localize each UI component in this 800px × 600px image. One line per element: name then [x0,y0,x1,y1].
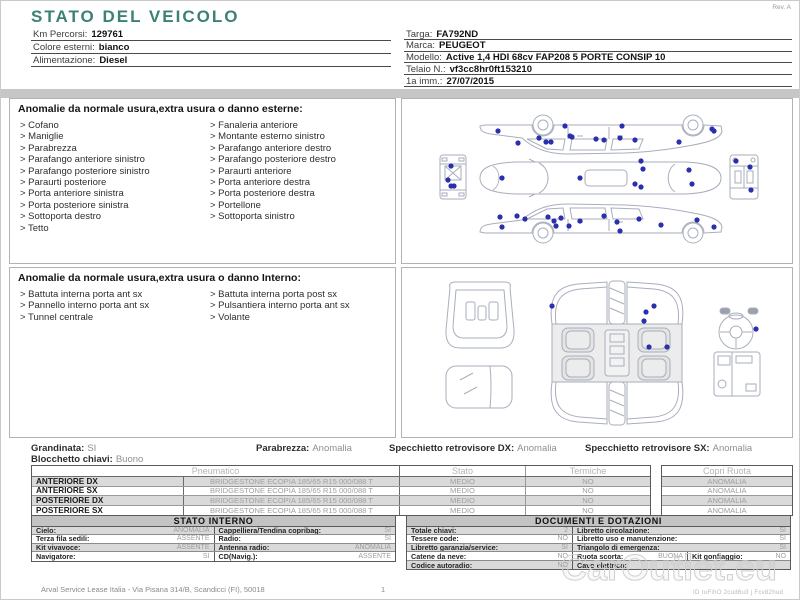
kv-cell: Libretto uso e manutenzione:SI [572,535,790,543]
damage-dot [711,224,716,229]
damage-dot [558,215,563,220]
kv-cell: Libretto circolazione:SI [572,527,790,535]
damage-dot [448,163,453,168]
anomaly-item: > Portellone [210,200,336,211]
tire-table: Pneumatico Stato Termiche ANTERIORE DXBR… [31,465,651,516]
kv-row: Kit vivavoce:ASSENTEAntenna radio:ANOMAL… [32,544,395,553]
damage-dot [577,175,582,180]
header-field-value: PEUGEOT [439,40,485,51]
interior-floorplan [551,281,683,425]
damage-dot [614,219,619,224]
header-field-label: Marca: [406,40,435,51]
kv-value: NO [558,535,569,542]
copri-ruota-row: ANOMALIA [662,487,792,497]
tire-termiche: NO [526,487,650,496]
damage-dot [636,216,641,221]
damage-dot [495,128,500,133]
kv-cell: CD(Navig.):ASSENTE [214,552,396,561]
anomaly-item: > Fanaleria anteriore [210,120,336,131]
damage-dot [651,303,656,308]
kv-value: SI [384,527,391,534]
anomaly-item: > Tetto [20,223,150,234]
page-title: STATO DEL VEICOLO [31,7,239,27]
interior-anomalies-col1: > Battuta interna porta ant sx> Pannello… [20,289,149,323]
kv-label: Libretto uso e manutenzione: [577,535,677,543]
header-field-label: Km Percorsi: [33,29,87,40]
status-line: Grandinata:SI Parabrezza:Anomalia Specch… [1,443,800,464]
damage-dot [617,228,622,233]
status-parabrezza: Parabrezza:Anomalia [256,443,352,454]
exterior-damage-diagram [401,98,793,264]
kv-value: 2 [564,527,568,534]
header-field-label: Alimentazione: [33,55,95,66]
interior-anomalies-section: Anomalie da normale usura,extra usura o … [9,267,396,438]
damage-dot [748,187,753,192]
damage-dot [522,216,527,221]
watermark-id-line: ID ruFihO 2cud6u3 j Fcv82hud [693,590,783,596]
tire-termiche: NO [526,506,650,516]
anomaly-item: > Pulsantiera interno porta ant sx [210,300,350,311]
damage-dot [664,344,669,349]
kv-label: Catene da neve: [411,552,466,560]
interior-damage-diagram [401,267,793,438]
caroutlet-watermark: CarOutlet.eu [561,547,777,589]
damage-dot [536,135,541,140]
anomaly-item: > Cofano [20,120,150,131]
tire-table-header: Pneumatico Stato Termiche [32,466,650,477]
kv-value: ASSENTE [177,544,210,551]
damage-dot [694,217,699,222]
anomaly-item: > Parafango posteriore sinistro [20,166,150,177]
roof-view [446,366,512,408]
header-field-value: vf3cc8hr0ft153210 [450,64,532,75]
anomaly-item: > Pannello interno porta ant sx [20,300,149,311]
kv-value: SI [384,535,391,542]
kv-value: ANOMALIA [173,527,209,534]
car-side-top [480,115,722,154]
documenti-dotazioni-title: DOCUMENTI E DOTAZIONI [407,516,790,527]
damage-dot [551,218,556,223]
car-side-bottom [480,204,722,243]
damage-dot [553,223,558,228]
tire-spec: BRIDGESTONE ECOPIA 185/65 R15 000/088 T [184,496,400,505]
anomaly-item: > Porta posteriore destra [210,188,336,199]
damage-dot [638,184,643,189]
tire-header-stato: Stato [400,466,526,476]
tire-termiche: NO [526,477,650,486]
tire-position: ANTERIORE SX [32,487,184,496]
anomaly-item: > Porta posteriore sinistra [20,200,150,211]
kv-cell: Totale chiavi:2 [407,527,572,535]
kv-cell: Tessere code:NO [407,535,572,543]
header-field-row: Marca:PEUGEOT [404,40,792,52]
tire-stato: MEDIO [400,506,526,516]
header-field-value: FA792ND [436,29,478,40]
interior-anomalies-col2: > Battuta interna porta post sx> Pulsant… [210,289,350,323]
kv-row: Cielo:ANOMALIACappelliera/Tendina coprib… [32,527,395,536]
kv-cell: Navigatore:SI [32,552,214,561]
damage-dot [499,175,504,180]
tire-row: ANTERIORE DXBRIDGESTONE ECOPIA 185/65 R1… [32,477,650,487]
header-field-value: Diesel [99,55,127,66]
tire-row: ANTERIORE SXBRIDGESTONE ECOPIA 185/65 R1… [32,487,650,497]
tire-row: POSTERIORE SXBRIDGESTONE ECOPIA 185/65 R… [32,506,650,516]
kv-cell: Kit vivavoce:ASSENTE [32,544,214,552]
tire-termiche: NO [526,496,650,505]
anomaly-item: > Maniglie [20,131,150,142]
damage-dot [601,137,606,142]
exterior-anomalies-col1: > Cofano> Maniglie> Parabrezza> Parafang… [20,120,150,234]
status-blocchetto-chiavi: Blocchetto chiavi:Buono [31,454,143,465]
anomaly-item: > Battuta interna porta ant sx [20,289,149,300]
damage-dot [689,181,694,186]
tire-stato: MEDIO [400,487,526,496]
header-field-row: Colore esterni:bianco [31,41,391,54]
kv-value: ASSENTE [177,535,210,542]
header-field-row: 1a imm.:27/07/2015 [404,75,792,87]
anomaly-item: > Parafango posteriore destro [210,154,336,165]
kv-value: SI [779,544,786,551]
kv-label: Radio: [219,535,241,543]
damage-dot [445,177,450,182]
damage-dot [632,137,637,142]
kv-cell: Radio:SI [214,535,396,543]
kv-cell: Terza fila sedili:ASSENTE [32,535,214,543]
stato-interno-title: STATO INTERNO [32,516,395,527]
copri-ruota-table: Copri Ruota ANOMALIAANOMALIAANOMALIAANOM… [661,465,793,516]
tire-rows: ANTERIORE DXBRIDGESTONE ECOPIA 185/65 R1… [32,477,650,515]
damage-dot [638,158,643,163]
kv-row: Terza fila sedili:ASSENTERadio:SI [32,535,395,544]
copri-ruota-row: ANOMALIA [662,496,792,506]
damage-dot [646,344,651,349]
vehicle-report-page: STATO DEL VEICOLO Rev. A Km Percorsi:129… [0,0,800,600]
car-front-view [440,155,466,199]
anomaly-item: > Paraurti anteriore [210,166,336,177]
damage-dot [566,223,571,228]
copri-ruota-value: ANOMALIA [662,496,792,505]
kv-label: Navigatore: [36,552,76,561]
copri-ruota-value: ANOMALIA [662,506,792,516]
header-field-value: Active 1,4 HDI 68cv FAP208 5 PORTE CONSI… [446,52,665,63]
kv-label: Antenna radio: [219,544,270,552]
header-fields-right: Targa:FA792NDMarca:PEUGEOTModello:Active… [404,28,792,87]
damage-dot [543,139,548,144]
kv-row: Totale chiavi:2Libretto circolazione:SI [407,527,790,536]
damage-dot [733,158,738,163]
tire-stato: MEDIO [400,496,526,505]
tire-position: POSTERIORE DX [32,496,184,505]
damage-dot [711,128,716,133]
kv-cell: Codice autoradio:NO [407,561,572,570]
exterior-anomalies-section: Anomalie da normale usura,extra usura o … [9,98,396,264]
anomaly-item: > Porta anteriore destra [210,177,336,188]
header-field-value: 129761 [91,29,123,40]
tire-row: POSTERIORE DXBRIDGESTONE ECOPIA 185/65 R… [32,496,650,506]
anomaly-item: > Parafango anteriore destro [210,143,336,154]
anomaly-item: > Tunnel centrale [20,312,149,323]
tire-position: POSTERIORE SX [32,506,184,516]
damage-dot [548,139,553,144]
copri-ruota-row: ANOMALIA [662,477,792,487]
footer-company: Arval Service Lease Italia - Via Pisana … [41,585,265,594]
kv-label: Cappelliera/Tendina copribag: [219,527,322,535]
kv-label: Kit vivavoce: [36,544,80,552]
header-field-row: Km Percorsi:129761 [31,28,391,41]
separator-bar [1,89,800,98]
copri-ruota-value: ANOMALIA [662,487,792,496]
damage-dot [549,303,554,308]
header-fields-left: Km Percorsi:129761Colore esterni:biancoA… [31,28,391,67]
tire-spec: BRIDGESTONE ECOPIA 185/65 R15 000/088 T [184,477,400,486]
kv-label: Codice autoradio: [411,561,472,570]
kv-label: Tessere code: [411,535,459,543]
kv-label: CD(Navig.): [219,552,258,561]
tire-position: ANTERIORE DX [32,477,184,486]
anomaly-item: > Porta anteriore sinistra [20,188,150,199]
trunk-open-view [446,282,514,348]
anomaly-item: > Parafango anteriore sinistro [20,154,150,165]
kv-value: ASSENTE [358,553,391,560]
status-grandinata: Grandinata:SI [31,443,96,454]
anomaly-item: > Sottoporta destro [20,211,150,222]
copri-ruota-header: Copri Ruota [662,466,792,477]
copri-ruota-row: ANOMALIA [662,506,792,516]
interior-anomalies-title: Anomalie da normale usura,extra usura o … [10,268,395,287]
damage-dot [686,167,691,172]
anomaly-item: > Paraurti posteriore [20,177,150,188]
kv-cell: Catene da neve:NO [407,552,572,560]
kv-value: SI [203,553,210,560]
exterior-damage-dots [445,123,753,233]
damage-dot [514,213,519,218]
header-field-label: Modello: [406,52,442,63]
damage-dot [658,222,663,227]
damage-dot [676,139,681,144]
kv-value: SI [779,535,786,542]
damage-dot [643,309,648,314]
anomaly-item: > Battuta interna porta post sx [210,289,350,300]
kv-cell: Cielo:ANOMALIA [32,527,214,535]
header-field-row: Alimentazione:Diesel [31,54,391,67]
kv-cell: Cappelliera/Tendina copribag:SI [214,527,396,535]
kv-value: ANOMALIA [355,544,391,551]
footer-page-number: 1 [381,585,385,594]
exterior-anomalies-col2: > Fanaleria anteriore> Montante esterno … [210,120,336,223]
damage-dot [593,136,598,141]
damage-dot [451,183,456,188]
kv-label: Terza fila sedili: [36,535,89,543]
exterior-car-diagram-svg [402,99,792,263]
kv-cell: Libretto garanzia/service:SI [407,544,572,552]
tire-stato: MEDIO [400,477,526,486]
revision-label: Rev. A [772,4,791,11]
interior-car-diagram-svg [402,268,792,437]
kv-label: Totale chiavi: [411,527,456,535]
status-specchietto-dx: Specchietto retrovisore DX:Anomalia [389,443,557,454]
header-field-label: Telaio N.: [406,64,446,75]
damage-dot [617,135,622,140]
damage-dot [562,123,567,128]
status-specchietto-sx: Specchietto retrovisore SX:Anomalia [585,443,752,454]
anomaly-item: > Sottoporta sinistro [210,211,336,222]
tire-tables: Pneumatico Stato Termiche ANTERIORE DXBR… [31,465,793,516]
kv-row: Tessere code:NOLibretto uso e manutenzio… [407,535,790,544]
header-field-label: Targa: [406,29,432,40]
header-field-label: Colore esterni: [33,42,95,53]
header-field-value: 27/07/2015 [446,76,494,87]
header-field-row: Modello:Active 1,4 HDI 68cv FAP208 5 POR… [404,52,792,64]
header-field-row: Telaio N.:vf3cc8hr0ft153210 [404,63,792,75]
kv-label: Libretto circolazione: [577,527,650,535]
kv-value: NO [776,553,787,560]
tire-spec: BRIDGESTONE ECOPIA 185/65 R15 000/088 T [184,487,400,496]
copri-ruota-value: ANOMALIA [662,477,792,486]
anomaly-item: > Volante [210,312,350,323]
stato-interno-rows: Cielo:ANOMALIACappelliera/Tendina coprib… [32,527,395,561]
damage-dot [640,166,645,171]
damage-dot [545,214,550,219]
tire-header-termiche: Termiche [526,466,650,476]
tire-header-pneumatico: Pneumatico [32,466,400,476]
header-field-value: bianco [99,42,130,53]
damage-dot [619,123,624,128]
damage-dot [515,140,520,145]
damage-dot [632,181,637,186]
damage-dot [577,218,582,223]
damage-dot [641,318,646,323]
kv-value: SI [779,527,786,534]
kv-cell: Antenna radio:ANOMALIA [214,544,396,552]
damage-dot [753,326,758,331]
header-field-label: 1a imm.: [406,76,442,87]
header-field-row: Targa:FA792ND [404,28,792,40]
kv-label: Libretto garanzia/service: [411,544,498,552]
tire-spec: BRIDGESTONE ECOPIA 185/65 R15 000/088 T [184,506,400,516]
tire-header-copri-ruota: Copri Ruota [662,466,792,476]
anomaly-item: > Montante esterno sinistro [210,131,336,142]
damage-dot [601,213,606,218]
damage-dot [569,134,574,139]
dashboard-view [714,308,760,396]
anomaly-item: > Parabrezza [20,143,150,154]
damage-dot [497,214,502,219]
kv-row: Navigatore:SICD(Navig.):ASSENTE [32,552,395,561]
car-top-view [480,159,721,197]
stato-interno-table: STATO INTERNO Cielo:ANOMALIACappelliera/… [31,515,396,562]
kv-label: Cielo: [36,527,56,535]
damage-dot [747,164,752,169]
copri-ruota-rows: ANOMALIAANOMALIAANOMALIAANOMALIA [662,477,792,515]
damage-dot [499,224,504,229]
exterior-anomalies-title: Anomalie da normale usura,extra usura o … [10,99,395,118]
